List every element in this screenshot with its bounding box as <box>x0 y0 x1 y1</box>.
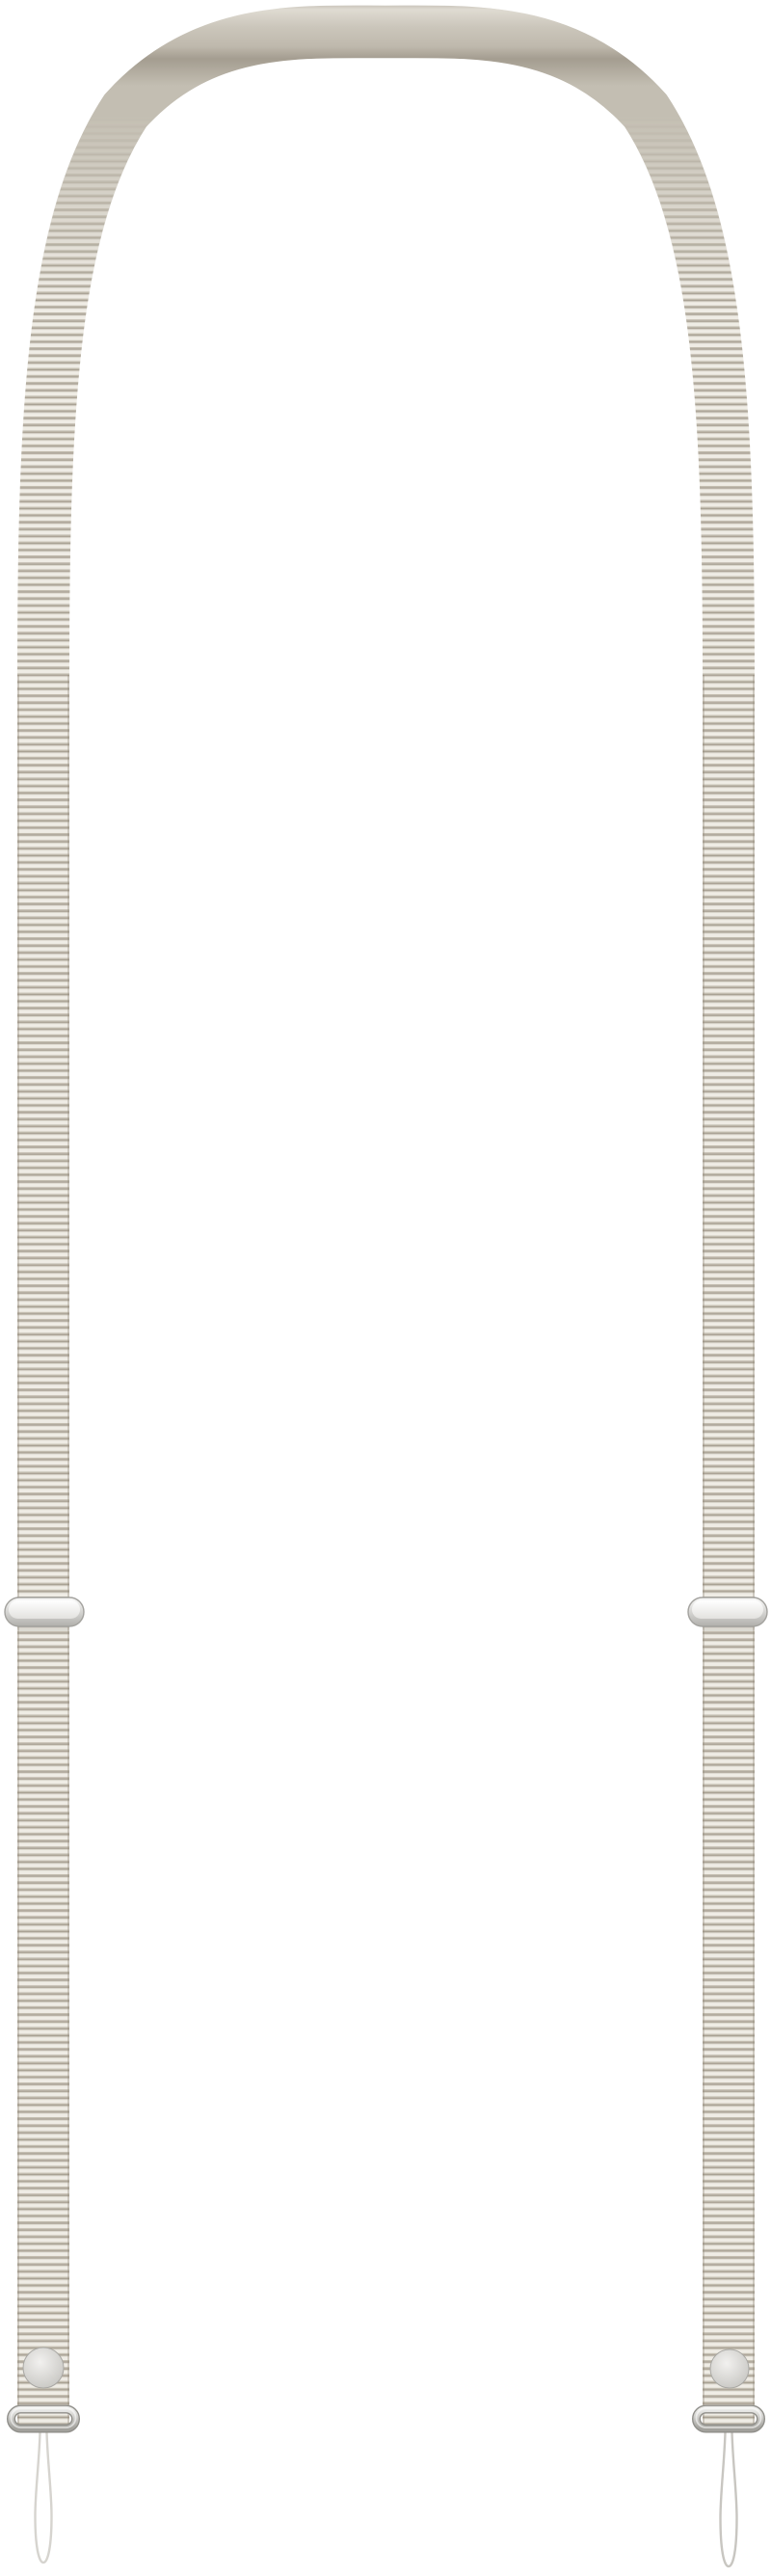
right-snap-button <box>710 2349 749 2388</box>
right-slider <box>688 1597 767 1631</box>
background <box>0 0 771 2576</box>
lanyard-illustration <box>0 0 771 2576</box>
strap-edge-right-outer <box>753 675 755 2426</box>
left-slider <box>5 1597 84 1631</box>
strap-edge-right-inner <box>703 675 705 2426</box>
left-slider-highlight <box>9 1600 80 1619</box>
strap-edge-left-outer <box>17 675 19 2426</box>
right-slider-highlight <box>692 1600 763 1619</box>
product-photo <box>0 0 771 2576</box>
left-snap-button <box>23 2348 64 2388</box>
strap-edge-left-inner <box>67 675 69 2426</box>
